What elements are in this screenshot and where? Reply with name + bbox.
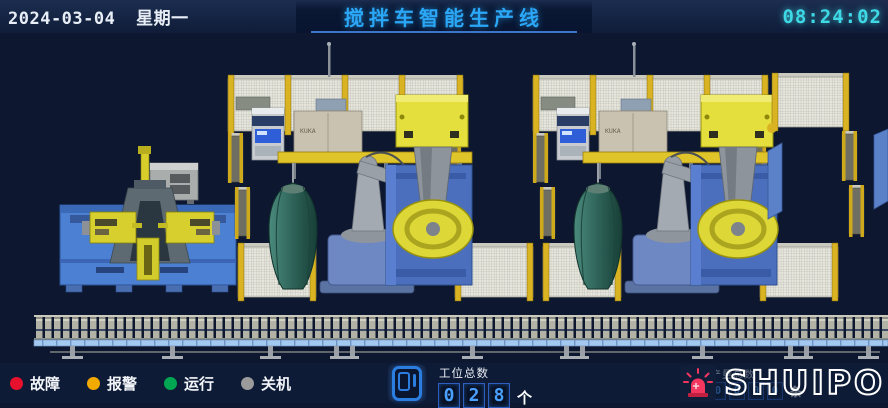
legend-alarm: 报警 — [87, 373, 137, 394]
legend-fault: 故障 — [10, 373, 60, 394]
alarm-dot-icon — [87, 377, 100, 390]
station-counter-label: 工位总数 — [439, 365, 532, 381]
legend-off-label: 关机 — [261, 373, 291, 394]
page-title: 搅拌车智能生产线 — [344, 2, 544, 31]
station-counter-digits: 0 2 8 个 — [438, 383, 532, 408]
header-bar: 2024-03-04 星期一 搅拌车智能生产线 08:24:02 — [0, 0, 888, 33]
date-text: 2024-03-04 — [8, 9, 115, 29]
station-device-icon — [392, 366, 422, 401]
status-legend: 故障 报警 运行 关机 — [10, 363, 291, 403]
production-scene: KUKA — [0, 33, 888, 363]
device-icon-panel — [388, 365, 426, 401]
output-conveyor — [34, 315, 888, 359]
station-digit: 8 — [488, 383, 510, 408]
station-digit: 0 — [438, 383, 460, 408]
left-prep-machine — [60, 146, 236, 292]
status-bar: 故障 报警 运行 关机 工位总数 0 2 8 个 产量总数 — [0, 363, 888, 403]
legend-fault-label: 故障 — [30, 373, 60, 394]
brand-area: SHUIPO — [680, 365, 885, 401]
beacon-icon-panel — [680, 365, 716, 401]
fault-dot-icon — [10, 377, 23, 390]
weekday-text: 星期一 — [136, 9, 189, 29]
workcell-1 — [228, 42, 533, 301]
station-counter: 工位总数 0 2 8 个 — [388, 365, 532, 408]
header-clock: 08:24:02 — [782, 6, 888, 28]
shuipo-logo: SHUIPO — [724, 365, 885, 401]
off-dot-icon — [241, 377, 254, 390]
header-date: 2024-03-04 星期一 — [0, 4, 296, 29]
legend-running-label: 运行 — [184, 373, 214, 394]
station-counter-unit: 个 — [517, 387, 532, 408]
right-edge-fences — [767, 73, 888, 237]
alarm-beacon-icon — [683, 367, 713, 399]
station-digit: 2 — [463, 383, 485, 408]
legend-off: 关机 — [241, 373, 291, 394]
title-banner: 搅拌车智能生产线 — [296, 0, 592, 33]
station-counter-body: 工位总数 0 2 8 个 — [438, 365, 532, 408]
legend-running: 运行 — [164, 373, 214, 394]
legend-alarm-label: 报警 — [107, 373, 137, 394]
running-dot-icon — [164, 377, 177, 390]
